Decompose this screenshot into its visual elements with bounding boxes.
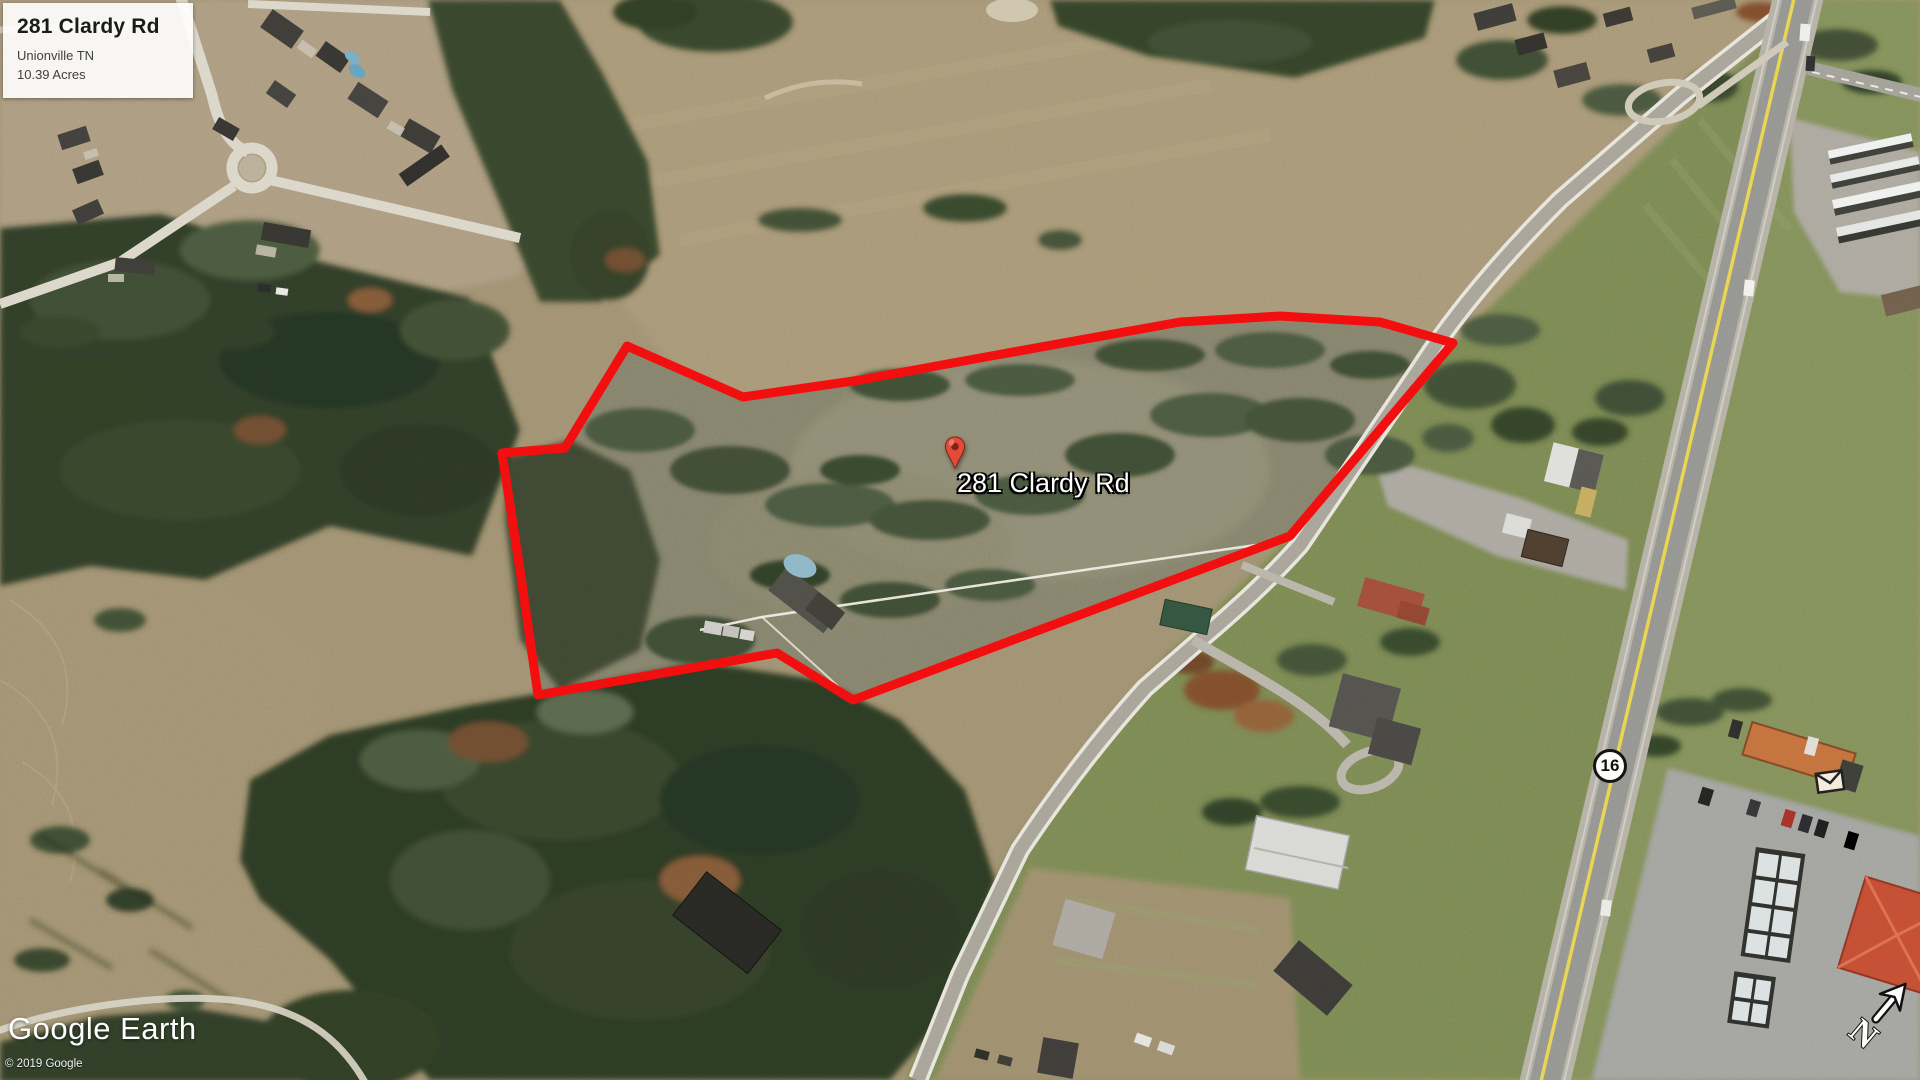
highway-16-shield: 16	[1593, 749, 1627, 783]
photo-grain	[0, 0, 1920, 1080]
property-city: Unionville TN	[17, 47, 179, 66]
google-earth-viewport[interactable]: 281 Clardy Rd Unionville TN 10.39 Acres …	[0, 0, 1920, 1080]
property-acreage: 10.39 Acres	[17, 66, 179, 85]
copyright-text: © 2019 Google	[5, 1058, 83, 1070]
google-earth-logo: Google Earth	[8, 1011, 197, 1047]
north-arrow[interactable]: N	[1833, 965, 1920, 1061]
highway-16-number: 16	[1601, 756, 1620, 776]
property-address-title: 281 Clardy Rd	[17, 15, 179, 39]
location-pin-label: 281 Clardy Rd	[957, 468, 1130, 499]
satellite-imagery[interactable]	[0, 0, 1920, 1080]
location-pin-icon[interactable]	[943, 436, 967, 470]
property-info-box: 281 Clardy Rd Unionville TN 10.39 Acres	[3, 3, 193, 98]
